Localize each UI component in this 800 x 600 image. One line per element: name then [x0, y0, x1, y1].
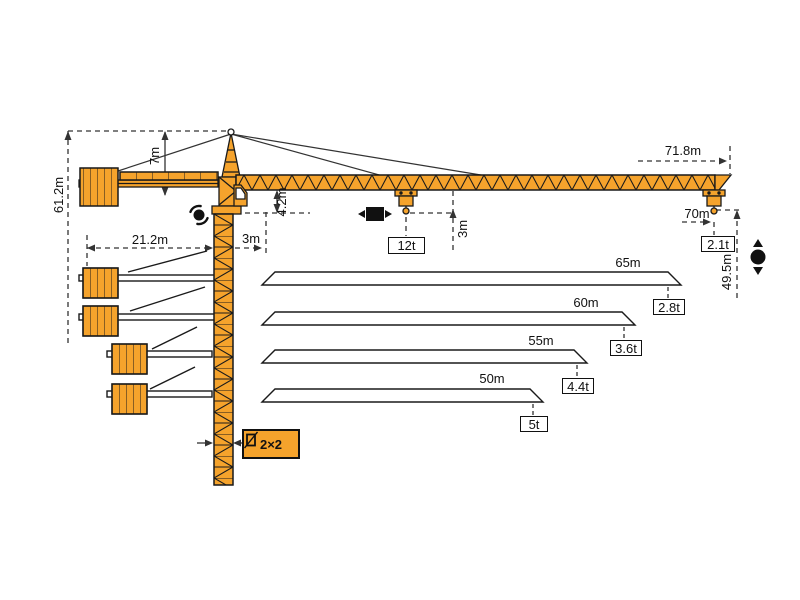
jib — [236, 175, 731, 190]
counter-jib — [79, 168, 218, 206]
hoisting-icon — [751, 239, 766, 275]
jib-variant-65m — [262, 272, 681, 285]
dim-hook-clearance: 3m — [456, 216, 470, 242]
label-tip-load-60: 3.6t — [610, 340, 642, 356]
counterweight-configs — [79, 251, 215, 414]
dim-max-radius: 70m — [681, 207, 713, 221]
label-jib-length-60: 60m — [566, 296, 606, 310]
mast-section-badge: 2×2 — [242, 429, 300, 459]
jib-tip — [715, 175, 731, 190]
label-mast-section: 2×2 — [260, 437, 282, 452]
trolley-travel-icon — [358, 207, 392, 221]
counterweight-blocks — [83, 268, 147, 414]
dim-hook-height: 49.5m — [720, 251, 734, 293]
tower-mast — [214, 214, 233, 485]
label-tip-load-65: 2.8t — [653, 299, 685, 315]
label-tip-capacity: 2.1t — [701, 236, 735, 252]
label-jib-length-50: 50m — [472, 372, 512, 386]
label-jib-length-55: 55m — [521, 334, 561, 348]
mast-section-icon — [244, 431, 258, 449]
pendant-cables — [118, 134, 487, 176]
dim-min-radius: 3m — [238, 232, 264, 246]
dim-jib-section-height: 4.2m — [275, 186, 289, 218]
crane-structure — [79, 129, 731, 485]
jib-variant-60m — [262, 312, 635, 325]
crane-diagram: 61.2m 7m 21.2m 3m 4.2m 3m 71.8m 70m 49.5… — [0, 0, 800, 600]
label-tip-load-50: 5t — [520, 416, 548, 432]
dim-counter-jib-radius: 21.2m — [125, 233, 175, 247]
trolley-hook — [395, 190, 417, 214]
dim-total-height: 61.2m — [52, 174, 66, 216]
dim-tower-head-height: 7m — [148, 143, 162, 169]
jib-variant-55m — [262, 350, 587, 363]
jib-variant-50m — [262, 389, 543, 402]
label-tip-load-55: 4.4t — [562, 378, 594, 394]
counter-jib-counterweight — [80, 168, 118, 206]
label-max-capacity: 12t — [388, 237, 425, 254]
label-jib-length-65: 65m — [608, 256, 648, 270]
slewing-icon — [191, 206, 208, 224]
dim-jib-length-overall: 71.8m — [658, 144, 708, 158]
